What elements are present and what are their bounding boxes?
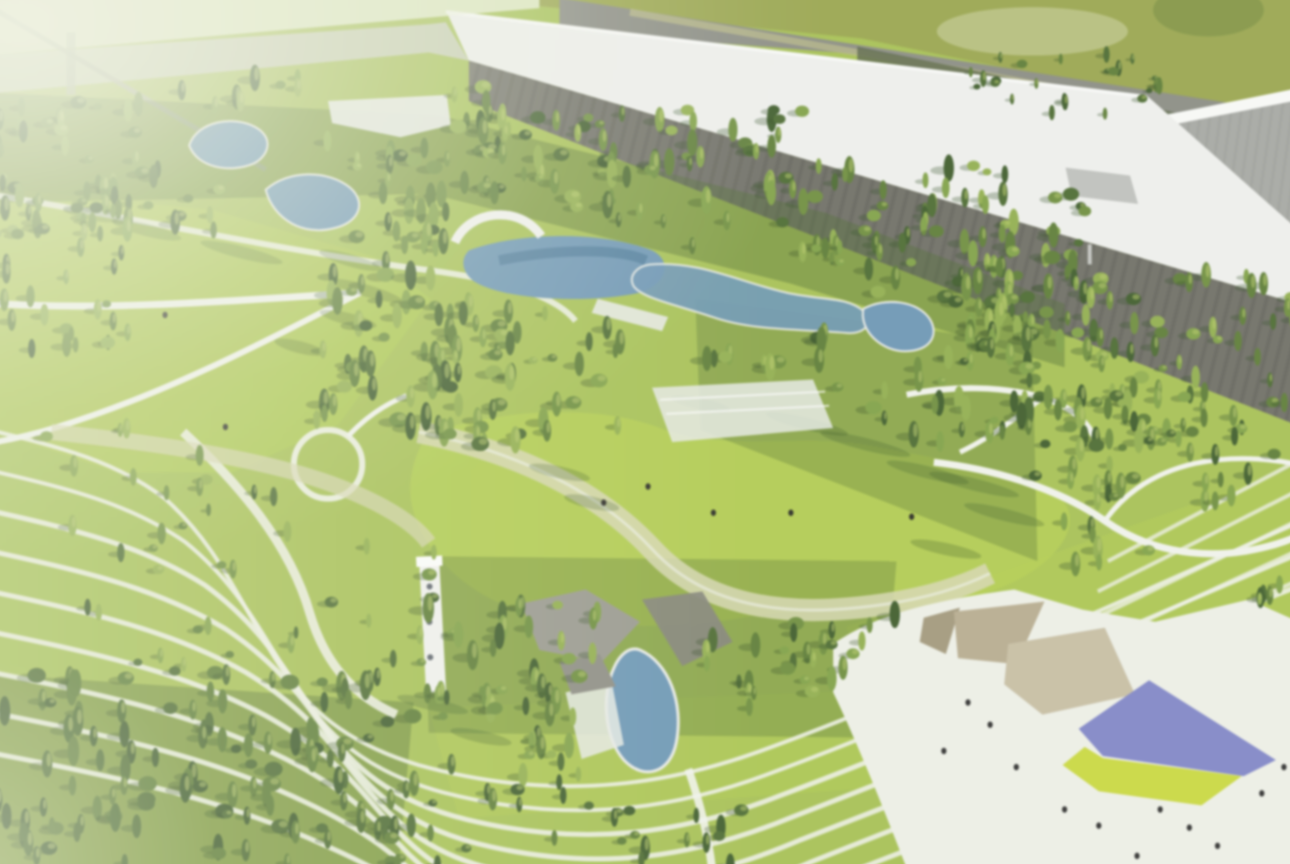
aerial-park-rendering [0,0,1290,864]
photo-glare [0,0,1290,864]
overall-haze [0,0,1290,864]
scene-canvas [0,0,1290,864]
